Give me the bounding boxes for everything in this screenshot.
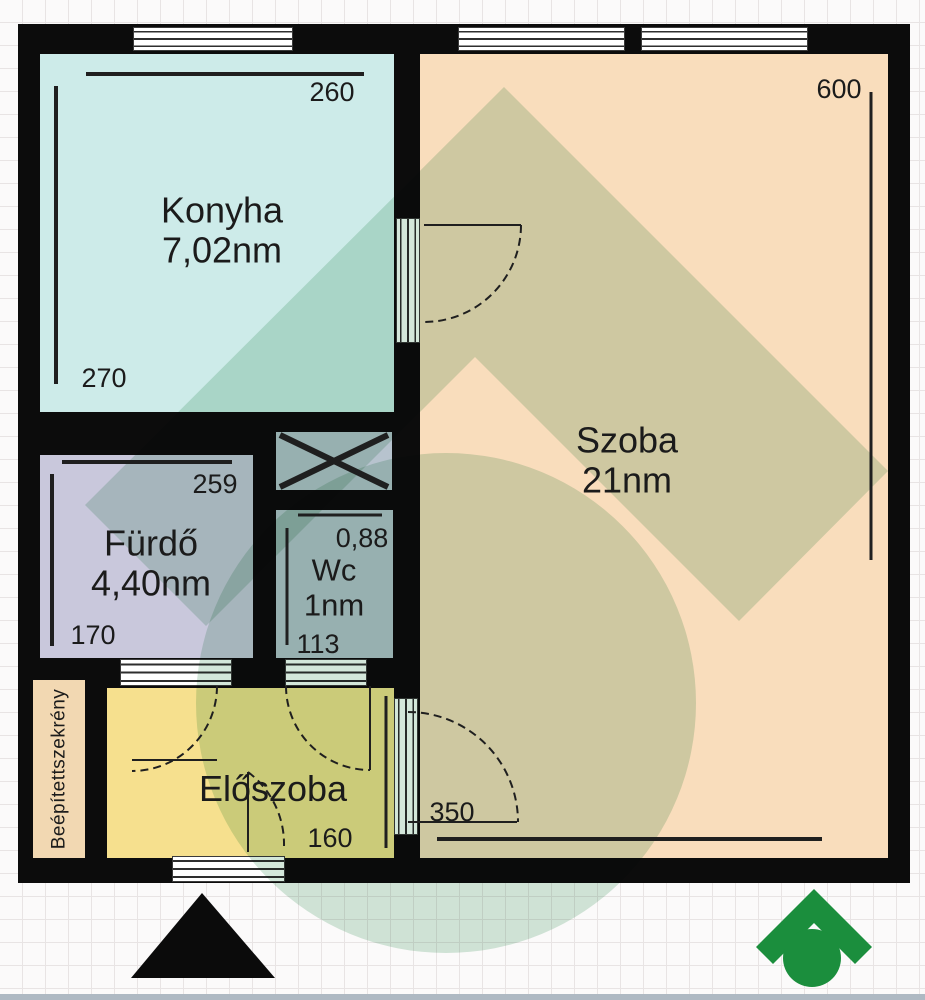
room-label-furdo: Fürdő 4,40nm	[91, 524, 211, 605]
dim-label-szoba-door: 350	[429, 797, 474, 827]
logo-dot-icon	[783, 929, 841, 987]
door-swing-arc	[286, 686, 370, 770]
room-area: 4,40nm	[91, 564, 211, 604]
dim-label-furdo-width: 259	[192, 469, 237, 499]
plan-linework	[0, 0, 925, 1000]
x-cross-shaft-icon	[280, 435, 388, 487]
dim-label-eloszoba-width: 160	[307, 823, 352, 853]
room-area: 1nm	[304, 588, 364, 623]
room-label-konyha: Konyha 7,02nm	[161, 191, 283, 272]
room-name: Szoba	[576, 421, 678, 461]
dim-label-wc-height: 113	[296, 629, 339, 659]
dim-label-szoba-height: 600	[816, 74, 861, 104]
dim-label-wc-width: 0,88	[336, 523, 389, 553]
closet-label: Beépítettszekrény	[48, 689, 69, 850]
room-name: Wc	[304, 553, 364, 588]
bottom-edge-strip	[0, 994, 925, 1000]
dim-label-furdo-height: 170	[70, 620, 115, 650]
room-name: Konyha	[161, 191, 283, 231]
room-name: Fürdő	[91, 524, 211, 564]
door-swing-arc	[132, 686, 217, 771]
dim-label-konyha-width: 260	[309, 77, 354, 107]
room-name: Előszoba	[199, 769, 347, 809]
room-label-wc: Wc 1nm	[304, 553, 364, 622]
room-area: 21nm	[576, 461, 678, 501]
room-label-eloszoba: Előszoba	[199, 769, 347, 809]
floorplan-canvas: Konyha 7,02nm Szoba 21nm Fürdő 4,40nm Wc…	[0, 0, 925, 1000]
room-label-szoba: Szoba 21nm	[576, 421, 678, 502]
room-area: 7,02nm	[161, 231, 283, 271]
brand-logo-icon	[756, 889, 872, 987]
door-swing-arc	[424, 225, 521, 322]
north-arrow-icon	[131, 893, 275, 978]
dim-label-konyha-height: 270	[81, 363, 126, 393]
